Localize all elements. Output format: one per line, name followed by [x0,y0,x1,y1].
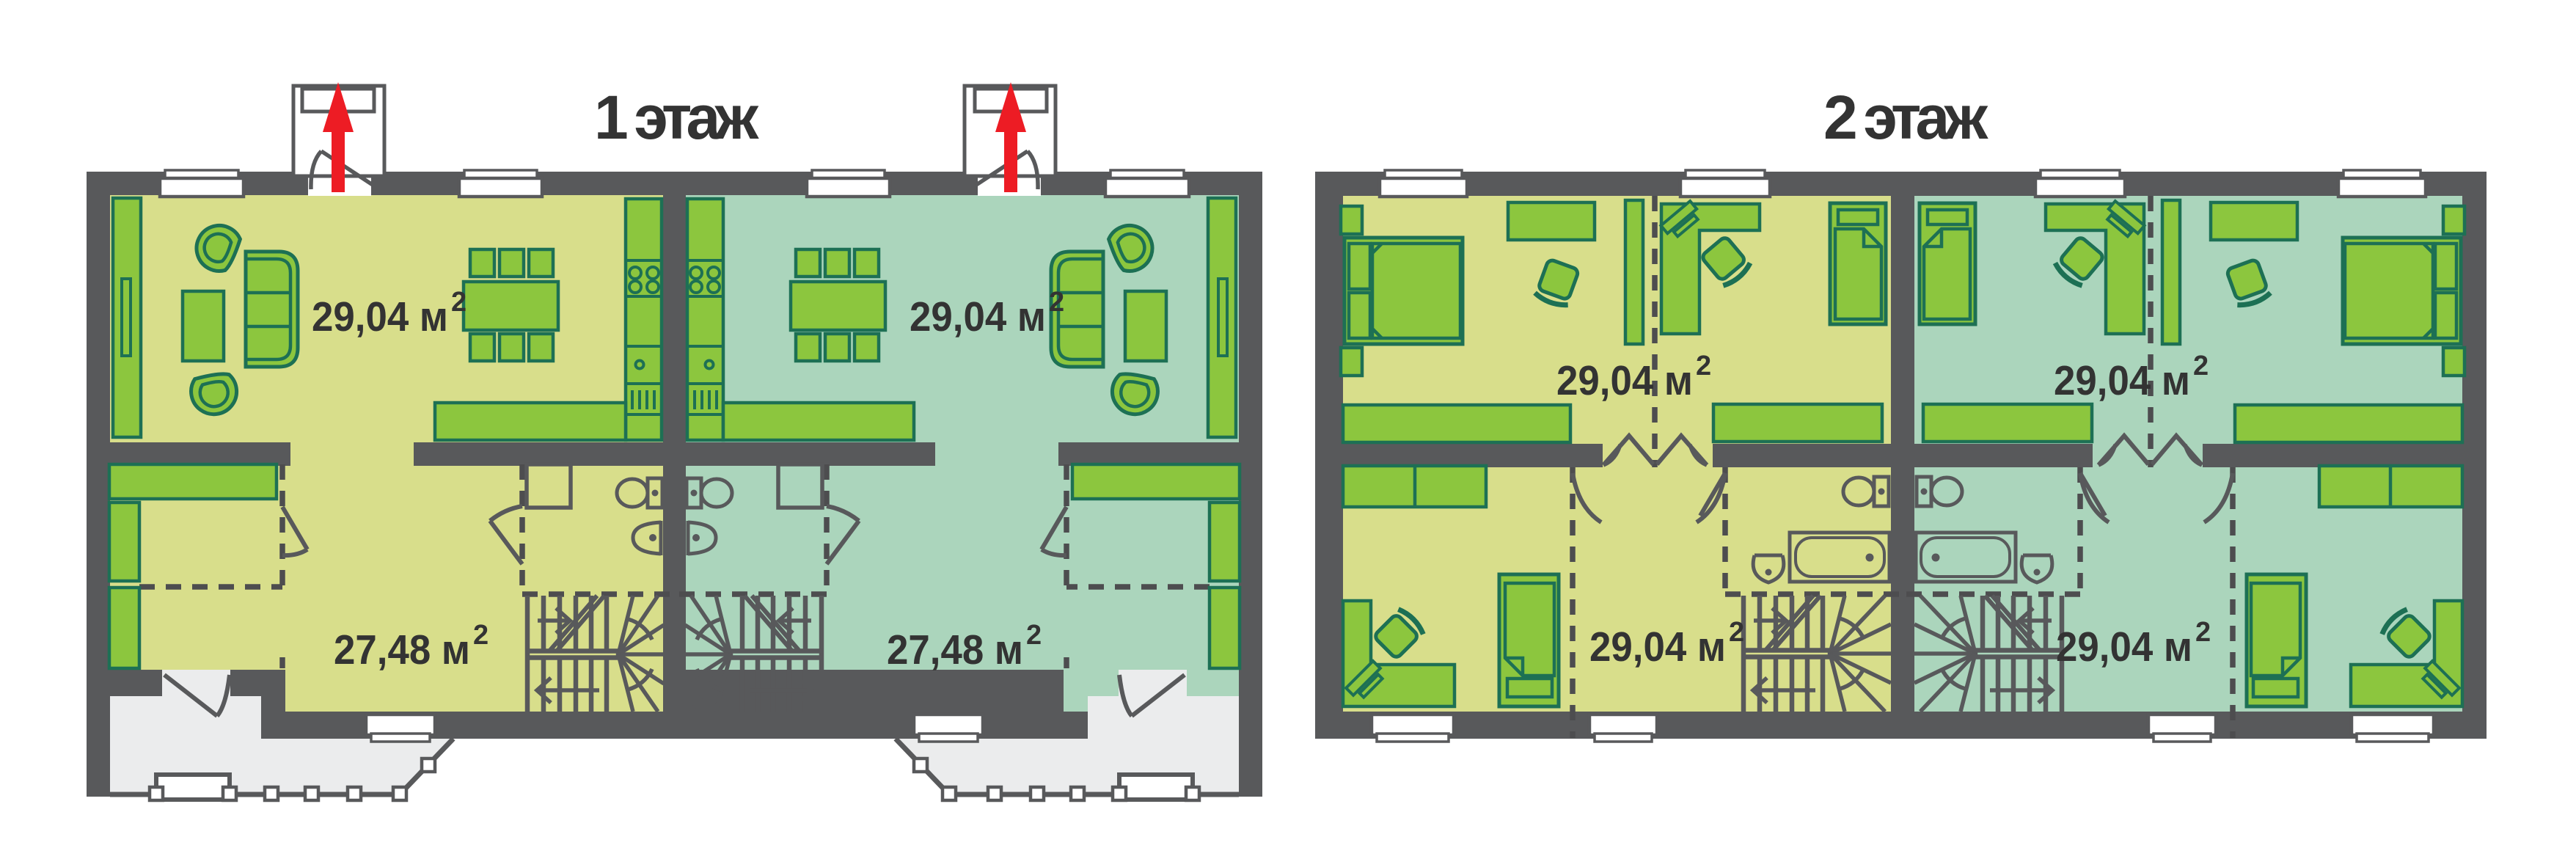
svg-text:27,48 м: 27,48 м [334,626,470,673]
svg-text:29,04 м: 29,04 м [2054,357,2190,404]
svg-text:1 этаж: 1 этаж [594,83,759,152]
svg-text:2: 2 [473,620,489,651]
svg-text:2 этаж: 2 этаж [1823,83,1988,152]
svg-text:2: 2 [1696,351,1711,381]
svg-text:2: 2 [1729,617,1744,648]
svg-text:29,04 м: 29,04 м [1589,624,1726,670]
svg-text:29,04 м: 29,04 м [2056,624,2192,670]
svg-text:29,04 м: 29,04 м [910,293,1046,340]
svg-text:2: 2 [1049,287,1064,318]
svg-text:2: 2 [2193,351,2209,381]
svg-text:2: 2 [451,287,466,318]
svg-text:2: 2 [1026,620,1042,651]
svg-text:29,04 м: 29,04 м [312,293,448,340]
svg-text:27,48 м: 27,48 м [887,626,1023,673]
svg-text:2: 2 [2195,617,2211,648]
svg-text:29,04 м: 29,04 м [1556,357,1693,404]
